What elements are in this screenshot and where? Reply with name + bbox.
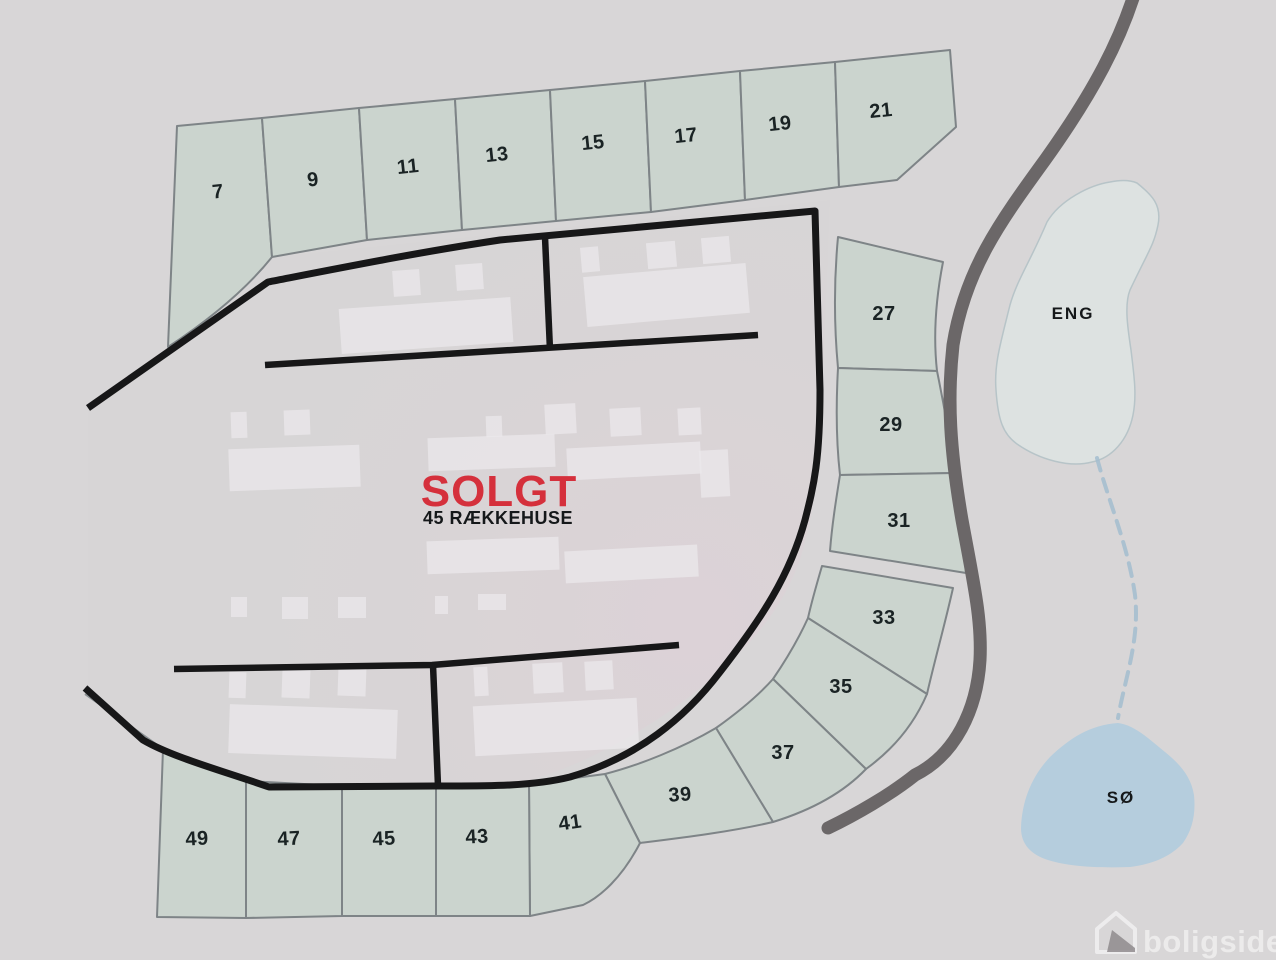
plot-label-17: 17	[673, 124, 698, 148]
plot-label-45: 45	[372, 827, 396, 850]
plot-label-29: 29	[879, 414, 902, 436]
meadow-label: ENG	[1052, 304, 1095, 323]
plot-43[interactable]	[436, 784, 530, 916]
plot-label-31: 31	[887, 510, 910, 532]
plot-label-11: 11	[396, 155, 420, 179]
plot-label-15: 15	[580, 131, 605, 155]
plot-label-9: 9	[306, 168, 320, 191]
plot-label-19: 19	[767, 112, 792, 136]
plot-label-21: 21	[868, 99, 893, 123]
plot-label-41: 41	[557, 810, 583, 835]
plot-label-35: 35	[829, 676, 852, 698]
plot-label-37: 37	[771, 742, 794, 764]
lake-label: SØ	[1107, 788, 1136, 807]
watermark-text: boligsiden	[1143, 924, 1276, 959]
plot-label-7: 7	[211, 180, 225, 203]
map-canvas: 7 9 11 13 15 17 19 21 27 29 31 33 35 37 …	[0, 0, 1276, 960]
plot-label-47: 47	[277, 827, 301, 850]
plot-45[interactable]	[342, 786, 436, 916]
plot-label-49: 49	[185, 827, 209, 850]
plot-label-43: 43	[465, 825, 489, 848]
plot-label-27: 27	[872, 303, 895, 325]
plot-label-33: 33	[872, 607, 895, 629]
plot-label-39: 39	[668, 783, 693, 807]
units-label: 45 RÆKKEHUSE	[423, 508, 573, 528]
site-plan-map: 7 9 11 13 15 17 19 21 27 29 31 33 35 37 …	[0, 0, 1276, 960]
plot-label-13: 13	[484, 143, 509, 167]
